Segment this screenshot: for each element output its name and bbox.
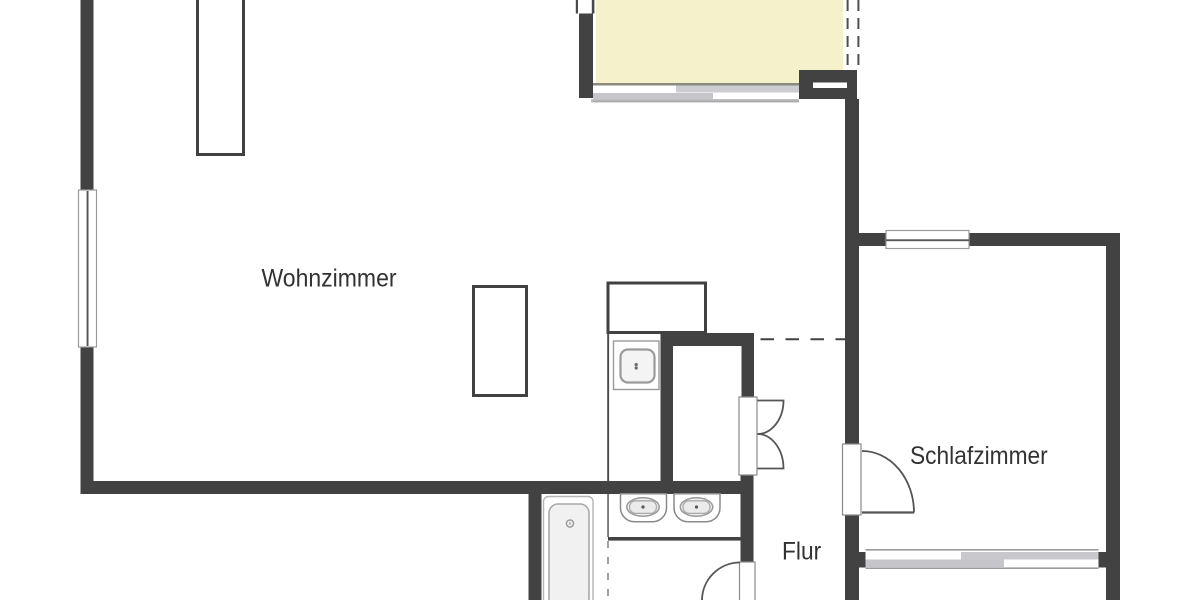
svg-text:Flur: Flur: [782, 538, 821, 566]
svg-text:Schlafzimmer: Schlafzimmer: [910, 442, 1048, 470]
svg-text:Wohnzimmer: Wohnzimmer: [262, 265, 397, 293]
